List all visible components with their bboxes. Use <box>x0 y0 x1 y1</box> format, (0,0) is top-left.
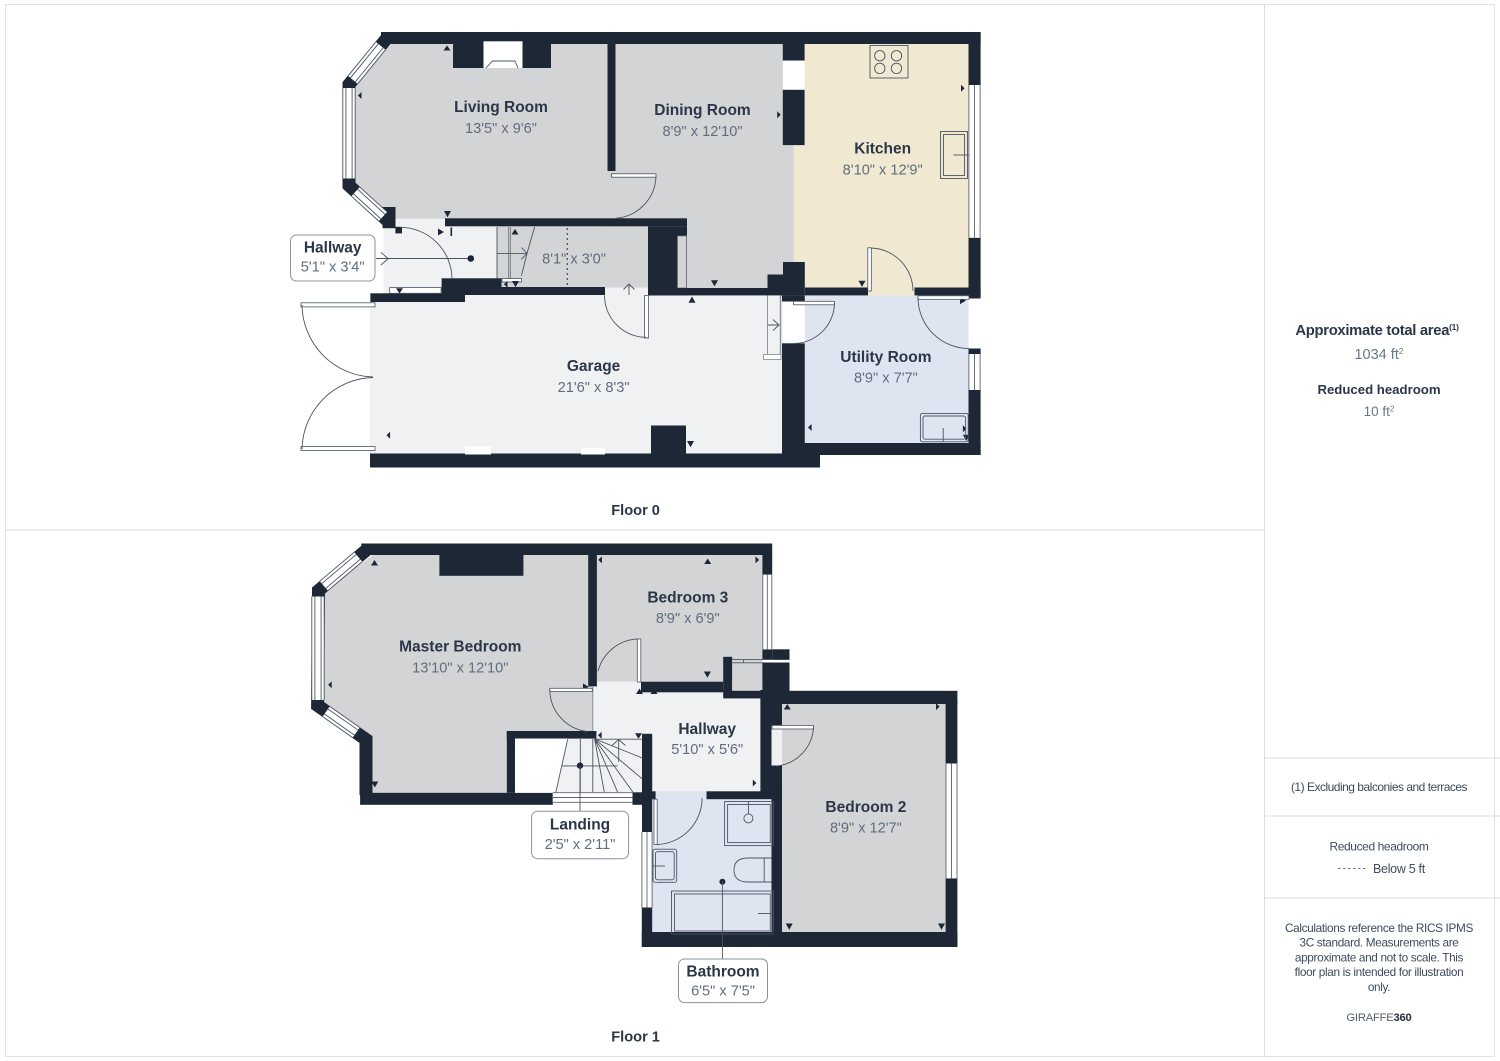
svg-text:13'5" x 9'6": 13'5" x 9'6" <box>465 121 537 137</box>
svg-text:only.: only. <box>1368 980 1390 994</box>
svg-text:5'1" x 3'4": 5'1" x 3'4" <box>301 260 365 276</box>
svg-text:Approximate total area(1): Approximate total area(1) <box>1295 322 1459 339</box>
svg-text:5'10" x 5'6": 5'10" x 5'6" <box>671 742 743 758</box>
svg-text:8'9" x 12'7": 8'9" x 12'7" <box>830 821 902 837</box>
svg-text:6'5" x 7'5": 6'5" x 7'5" <box>691 984 755 1000</box>
svg-text:Reduced headroom: Reduced headroom <box>1317 382 1440 397</box>
svg-text:Kitchen: Kitchen <box>854 141 911 158</box>
svg-text:GIRAFFE360: GIRAFFE360 <box>1346 1012 1411 1024</box>
svg-text:(1) Excluding balconies and te: (1) Excluding balconies and terraces <box>1291 780 1468 794</box>
svg-text:Floor 0: Floor 0 <box>611 503 660 519</box>
svg-text:approximate and not to scale.: approximate and not to scale. This <box>1295 950 1464 964</box>
svg-text:Hallway: Hallway <box>304 240 362 257</box>
svg-text:Floor 1: Floor 1 <box>611 1030 660 1046</box>
svg-text:Utility Room: Utility Room <box>840 349 931 366</box>
svg-text:Bathroom: Bathroom <box>686 964 759 981</box>
svg-text:3C standard. Measurements are: 3C standard. Measurements are <box>1299 936 1459 950</box>
svg-text:Calculations reference the RIC: Calculations reference the RICS IPMS <box>1285 921 1474 935</box>
svg-text:8'9" x 7'7": 8'9" x 7'7" <box>854 371 918 387</box>
svg-text:10 ft2: 10 ft2 <box>1364 404 1395 419</box>
svg-text:Hallway: Hallway <box>678 721 736 738</box>
svg-text:Reduced headroom: Reduced headroom <box>1329 840 1428 854</box>
svg-text:Master Bedroom: Master Bedroom <box>399 639 521 656</box>
svg-text:13'10" x 12'10": 13'10" x 12'10" <box>412 661 508 677</box>
svg-text:Living Room: Living Room <box>454 99 548 116</box>
svg-text:8'9" x 6'9": 8'9" x 6'9" <box>656 611 720 627</box>
svg-text:1034 ft2: 1034 ft2 <box>1354 346 1403 363</box>
svg-text:2'5" x 2'11": 2'5" x 2'11" <box>545 837 616 853</box>
svg-text:Dining Room: Dining Room <box>654 102 750 119</box>
svg-text:Garage: Garage <box>567 358 621 375</box>
svg-text:Bedroom 3: Bedroom 3 <box>647 590 728 607</box>
svg-text:8'9" x 12'10": 8'9" x 12'10" <box>662 124 742 140</box>
svg-text:Landing: Landing <box>550 817 610 834</box>
svg-text:21'6" x 8'3": 21'6" x 8'3" <box>558 380 630 396</box>
svg-text:8'1" x 3'0": 8'1" x 3'0" <box>542 252 606 268</box>
svg-text:8'10" x 12'9": 8'10" x 12'9" <box>843 163 923 179</box>
svg-text:Bedroom 2: Bedroom 2 <box>825 799 906 816</box>
svg-text:Below 5 ft: Below 5 ft <box>1373 862 1426 876</box>
svg-text:floor plan is intended for ill: floor plan is intended for illustration <box>1295 965 1464 979</box>
